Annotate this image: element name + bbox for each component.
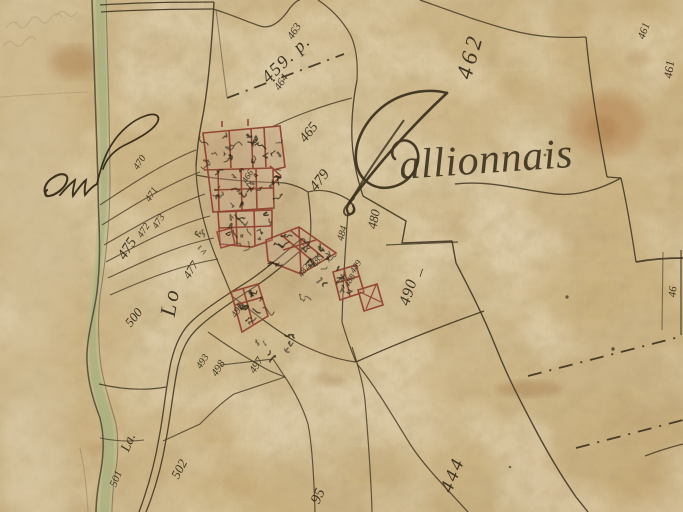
svg-text:46: 46: [667, 285, 680, 298]
svg-text:Lo: Lo: [155, 285, 185, 319]
svg-text:461: 461: [661, 60, 677, 80]
